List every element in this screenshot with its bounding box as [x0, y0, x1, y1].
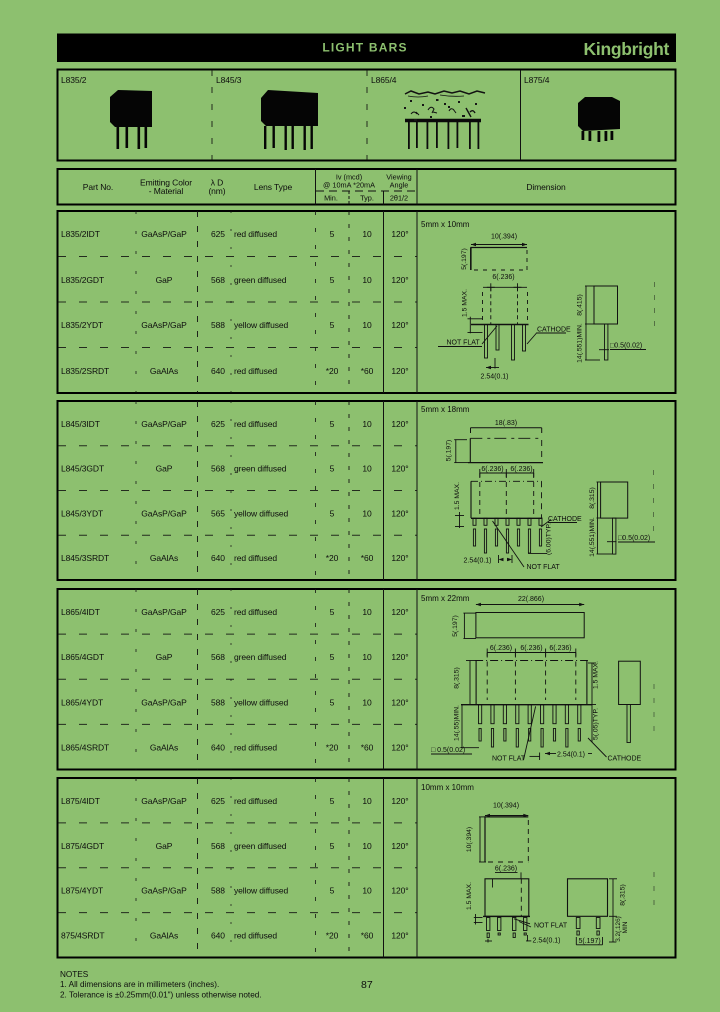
svg-text:5: 5 [330, 419, 335, 429]
svg-text:5(.197): 5(.197) [461, 248, 468, 270]
svg-text:120°: 120° [391, 652, 408, 662]
svg-text:10: 10 [362, 229, 372, 239]
svg-text:87: 87 [361, 979, 373, 991]
svg-text:10: 10 [362, 275, 372, 285]
svg-text:10mm x 10mm: 10mm x 10mm [421, 783, 474, 792]
svg-text:1. All dimensions are in milli: 1. All dimensions are in millimeters (in… [60, 980, 219, 989]
svg-text:120°: 120° [391, 419, 408, 429]
svg-text:L835/2GDT: L835/2GDT [61, 275, 104, 285]
svg-text:GaAsP/GaP: GaAsP/GaP [141, 697, 187, 707]
svg-text:120°: 120° [391, 607, 408, 617]
svg-text:5: 5 [330, 320, 335, 330]
svg-text:red diffused: red diffused [234, 796, 277, 806]
svg-text:NOT FLAT: NOT FLAT [447, 340, 481, 347]
svg-text:120°: 120° [391, 229, 408, 239]
svg-text:L875/4IDT: L875/4IDT [61, 796, 100, 806]
svg-text:5mm x 10mm: 5mm x 10mm [421, 220, 470, 229]
svg-text:red diffused: red diffused [234, 229, 277, 239]
svg-text:5: 5 [330, 697, 335, 707]
svg-text:14(.551)MIN.: 14(.551)MIN. [577, 323, 584, 363]
svg-text:120°: 120° [391, 697, 408, 707]
svg-text:yellow diffused: yellow diffused [234, 320, 288, 330]
svg-text:L865/4GDT: L865/4GDT [61, 652, 104, 662]
svg-text:red diffused: red diffused [234, 607, 277, 617]
svg-text:6(.236): 6(.236) [490, 645, 512, 652]
svg-text:GaAlAs: GaAlAs [150, 742, 178, 752]
svg-text:120°: 120° [391, 508, 408, 518]
svg-text:5mm x 22mm: 5mm x 22mm [421, 594, 470, 603]
svg-text:GaAsP/GaP: GaAsP/GaP [141, 796, 187, 806]
svg-text:*20: *20 [326, 366, 339, 376]
svg-text:□0.5(0.02): □0.5(0.02) [618, 535, 650, 542]
svg-text:10: 10 [362, 508, 372, 518]
svg-text:120°: 120° [391, 320, 408, 330]
svg-text:red diffused: red diffused [234, 553, 277, 563]
svg-text:5: 5 [330, 464, 335, 474]
svg-text:5: 5 [330, 275, 335, 285]
svg-text:120°: 120° [391, 841, 408, 851]
svg-text:6(.236): 6(.236) [492, 274, 514, 281]
svg-text:L845/3IDT: L845/3IDT [61, 419, 100, 429]
svg-text:5: 5 [330, 796, 335, 806]
svg-text:5: 5 [330, 841, 335, 851]
svg-text:MIN: MIN [622, 921, 629, 933]
svg-text:□ 0.5(0.02): □ 0.5(0.02) [431, 747, 465, 754]
svg-text:10: 10 [362, 796, 372, 806]
svg-text:8(.315): 8(.315) [454, 667, 461, 689]
svg-text:10: 10 [362, 652, 372, 662]
svg-text:1.5 MAX.: 1.5 MAX. [466, 882, 473, 910]
svg-text:(nm): (nm) [208, 186, 225, 196]
svg-text:565: 565 [211, 508, 225, 518]
svg-text:GaAsP/GaP: GaAsP/GaP [141, 508, 187, 518]
svg-text:2. Tolerance is ±0.25mm(0.01"): 2. Tolerance is ±0.25mm(0.01") unless ot… [60, 991, 262, 1000]
svg-text:568: 568 [211, 841, 225, 851]
svg-text:CATHODE: CATHODE [537, 327, 571, 334]
svg-text:875/4SRDT: 875/4SRDT [61, 931, 105, 941]
svg-text:2.54(0.1): 2.54(0.1) [557, 752, 585, 759]
svg-text:1.5 MAX.: 1.5 MAX. [454, 482, 461, 510]
svg-text:588: 588 [211, 697, 225, 707]
svg-text:NOTES: NOTES [60, 970, 89, 979]
svg-text:6(.236): 6(.236) [495, 866, 517, 873]
svg-text:Min.: Min. [324, 194, 338, 203]
svg-text:1.5 MAX.: 1.5 MAX. [462, 289, 469, 317]
svg-text:120°: 120° [391, 742, 408, 752]
svg-text:2.54(0.1): 2.54(0.1) [481, 374, 509, 381]
svg-text:640: 640 [211, 931, 225, 941]
svg-text:LIGHT BARS: LIGHT BARS [322, 41, 407, 55]
svg-text:*20: *20 [326, 931, 339, 941]
svg-text:8(.315): 8(.315) [589, 487, 596, 509]
svg-text:GaAlAs: GaAlAs [150, 366, 178, 376]
svg-text:GaP: GaP [156, 652, 173, 662]
svg-text:5mm x 18mm: 5mm x 18mm [421, 405, 470, 414]
svg-text:GaP: GaP [156, 841, 173, 851]
svg-text:GaAlAs: GaAlAs [150, 931, 178, 941]
svg-text:5: 5 [330, 229, 335, 239]
svg-text:3.2(.126): 3.2(.126) [615, 916, 622, 942]
svg-text:6(.236): 6(.236) [549, 645, 571, 652]
svg-text:NOT FLAT: NOT FLAT [534, 923, 568, 930]
svg-text:*20: *20 [326, 742, 339, 752]
svg-text:22(.866): 22(.866) [518, 596, 544, 603]
svg-text:640: 640 [211, 553, 225, 563]
svg-text:8(.315): 8(.315) [620, 884, 627, 906]
svg-text:@ 10mA *20mA: @ 10mA *20mA [323, 181, 375, 190]
svg-text:Kingbright: Kingbright [584, 39, 670, 59]
svg-text:red diffused: red diffused [234, 419, 277, 429]
svg-text:5(.197): 5(.197) [446, 440, 453, 462]
svg-text:14(.551)MIN.: 14(.551)MIN. [589, 517, 596, 557]
svg-text:1.5 MAX.: 1.5 MAX. [593, 661, 600, 689]
svg-text:120°: 120° [391, 886, 408, 896]
svg-text:640: 640 [211, 366, 225, 376]
svg-text:2.54(0.1): 2.54(0.1) [533, 938, 561, 945]
svg-text:Dimension: Dimension [526, 182, 566, 192]
svg-text:5: 5 [330, 652, 335, 662]
svg-text:568: 568 [211, 275, 225, 285]
svg-text:L875/4: L875/4 [524, 75, 550, 85]
svg-text:green diffused: green diffused [234, 841, 287, 851]
svg-text:625: 625 [211, 229, 225, 239]
svg-text:120°: 120° [391, 275, 408, 285]
svg-text:*60: *60 [361, 931, 374, 941]
svg-text:8(.415): 8(.415) [577, 294, 584, 316]
svg-text:CATHODE: CATHODE [548, 516, 582, 523]
svg-text:10: 10 [362, 697, 372, 707]
svg-text:*60: *60 [361, 366, 374, 376]
svg-text:14(.55)MIN.: 14(.55)MIN. [454, 705, 461, 741]
svg-text:625: 625 [211, 607, 225, 617]
svg-text:GaAsP/GaP: GaAsP/GaP [141, 419, 187, 429]
svg-text:L835/2YDT: L835/2YDT [61, 320, 103, 330]
svg-text:yellow diffused: yellow diffused [234, 697, 288, 707]
svg-text:18(.83): 18(.83) [495, 420, 517, 427]
svg-text:10: 10 [362, 607, 372, 617]
svg-text:2θ1/2: 2θ1/2 [390, 194, 408, 203]
svg-text:L875/4GDT: L875/4GDT [61, 841, 104, 851]
svg-text:L875/4YDT: L875/4YDT [61, 886, 103, 896]
svg-text:10: 10 [362, 886, 372, 896]
svg-text:(6.00)TYP.: (6.00)TYP. [546, 523, 553, 555]
svg-text:L845/3: L845/3 [216, 75, 242, 85]
svg-text:Typ.: Typ. [360, 194, 374, 203]
svg-text:120°: 120° [391, 796, 408, 806]
svg-text:568: 568 [211, 464, 225, 474]
svg-text:NOT FLAT: NOT FLAT [492, 756, 526, 763]
svg-text:L835/2: L835/2 [61, 75, 87, 85]
svg-text:L835/2SRDT: L835/2SRDT [61, 366, 109, 376]
svg-text:green diffused: green diffused [234, 464, 287, 474]
svg-text:- Material: - Material [149, 186, 184, 196]
svg-text:GaAsP/GaP: GaAsP/GaP [141, 607, 187, 617]
svg-text:GaAlAs: GaAlAs [150, 553, 178, 563]
svg-text:5(.05)TYP.: 5(.05)TYP. [593, 708, 600, 740]
svg-text:L845/3SRDT: L845/3SRDT [61, 553, 109, 563]
svg-text:NOT FLAT: NOT FLAT [527, 564, 561, 571]
svg-text:10: 10 [362, 419, 372, 429]
svg-text:120°: 120° [391, 366, 408, 376]
svg-text:588: 588 [211, 320, 225, 330]
svg-text:GaAsP/GaP: GaAsP/GaP [141, 320, 187, 330]
svg-text:yellow diffused: yellow diffused [234, 886, 288, 896]
svg-text:10: 10 [362, 464, 372, 474]
svg-text:red diffused: red diffused [234, 366, 277, 376]
svg-text:L865/4IDT: L865/4IDT [61, 607, 100, 617]
svg-text:L845/3YDT: L845/3YDT [61, 508, 103, 518]
svg-text:Angle: Angle [390, 181, 409, 190]
svg-text:green diffused: green diffused [234, 275, 287, 285]
svg-text:*20: *20 [326, 553, 339, 563]
svg-text:GaP: GaP [156, 464, 173, 474]
svg-text:10: 10 [362, 320, 372, 330]
svg-text:10(.394): 10(.394) [466, 827, 473, 852]
svg-text:5(.197): 5(.197) [579, 938, 601, 945]
svg-text:2.54(0.1): 2.54(0.1) [464, 558, 492, 565]
svg-text:Lens Type: Lens Type [254, 182, 293, 192]
svg-text:Part No.: Part No. [83, 182, 113, 192]
svg-text:10(.394): 10(.394) [493, 803, 519, 810]
svg-text:GaAsP/GaP: GaAsP/GaP [141, 886, 187, 896]
svg-text:5: 5 [330, 607, 335, 617]
svg-text:red diffused: red diffused [234, 931, 277, 941]
svg-text:5(.197): 5(.197) [452, 615, 459, 637]
svg-text:640: 640 [211, 742, 225, 752]
svg-text:□0.5(0.02): □0.5(0.02) [610, 343, 642, 350]
svg-text:568: 568 [211, 652, 225, 662]
svg-text:6(.236): 6(.236) [510, 466, 532, 473]
svg-text:L835/2IDT: L835/2IDT [61, 229, 100, 239]
svg-text:*60: *60 [361, 742, 374, 752]
svg-text:120°: 120° [391, 553, 408, 563]
svg-text:625: 625 [211, 419, 225, 429]
svg-text:625: 625 [211, 796, 225, 806]
svg-text:6(.236): 6(.236) [520, 645, 542, 652]
svg-text:5: 5 [330, 508, 335, 518]
svg-text:GaAsP/GaP: GaAsP/GaP [141, 229, 187, 239]
svg-text:10: 10 [362, 841, 372, 851]
svg-text:120°: 120° [391, 464, 408, 474]
svg-text:GaP: GaP [156, 275, 173, 285]
svg-text:*60: *60 [361, 553, 374, 563]
svg-text:L865/4SRDT: L865/4SRDT [61, 742, 109, 752]
svg-text:120°: 120° [391, 931, 408, 941]
svg-text:CATHODE: CATHODE [608, 756, 642, 763]
svg-text:588: 588 [211, 886, 225, 896]
svg-text:5: 5 [330, 886, 335, 896]
svg-text:L865/4YDT: L865/4YDT [61, 697, 103, 707]
svg-text:L865/4: L865/4 [371, 75, 397, 85]
svg-text:green diffused: green diffused [234, 652, 287, 662]
svg-text:red diffused: red diffused [234, 742, 277, 752]
svg-text:L845/3GDT: L845/3GDT [61, 464, 104, 474]
svg-text:yellow diffused: yellow diffused [234, 508, 288, 518]
svg-text:6(.236): 6(.236) [481, 466, 503, 473]
svg-text:10(.394): 10(.394) [491, 234, 517, 241]
